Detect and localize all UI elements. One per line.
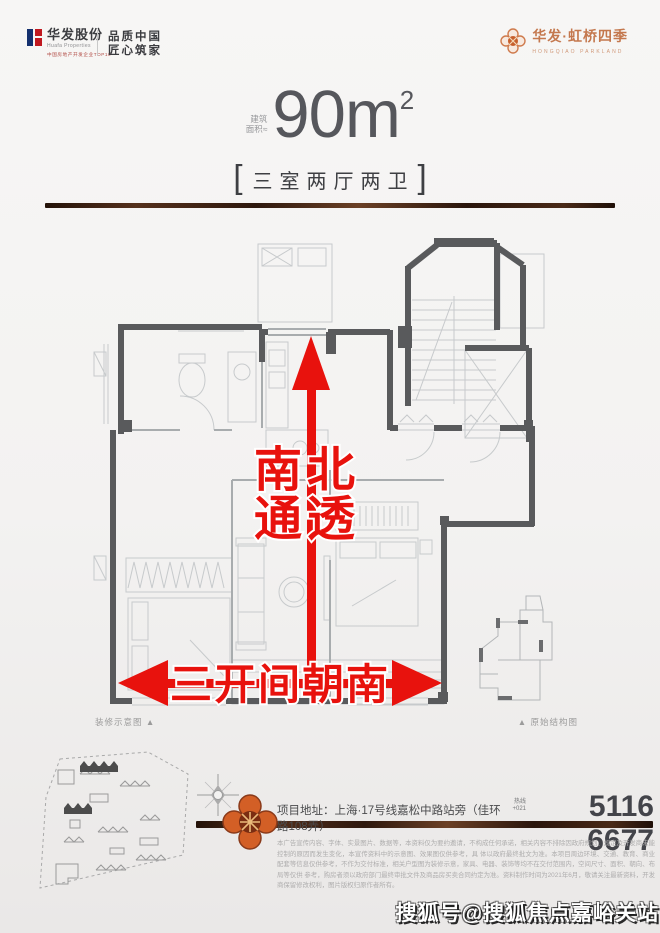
legal-disclaimer: 本广告宣传内容、字体、实景图片、数据等，本资料仅为要约邀请，不构成任何承诺，相关… bbox=[277, 839, 655, 892]
annotation-north-south-2: 通透 bbox=[254, 493, 360, 546]
caption-original-plan: ▲ 原始结构图 bbox=[478, 716, 578, 728]
site-plan-sketch bbox=[28, 742, 213, 894]
annotation-north-south-1: 南北 bbox=[254, 444, 360, 497]
mini-structure-plan bbox=[479, 596, 552, 700]
project-address: 项目地址：上海·17号线嘉松中路站旁（佳环路108弄） bbox=[277, 802, 512, 834]
address-label: 项目地址： bbox=[277, 805, 335, 817]
sohu-watermark: 搜狐号@搜狐焦点嘉峪关站 bbox=[396, 897, 659, 927]
hotline-prefix: 热线 +021 bbox=[508, 799, 526, 813]
annotation-south-facing: 三开间朝南 bbox=[170, 661, 390, 708]
poster-page: 华发股份 Huafa Properties 中国房地产开发企业TOP10 品质中… bbox=[0, 0, 660, 933]
footer-flower-emblem bbox=[221, 793, 279, 851]
caption-decorated-plan: 装修示意图 ▲ bbox=[95, 716, 155, 728]
